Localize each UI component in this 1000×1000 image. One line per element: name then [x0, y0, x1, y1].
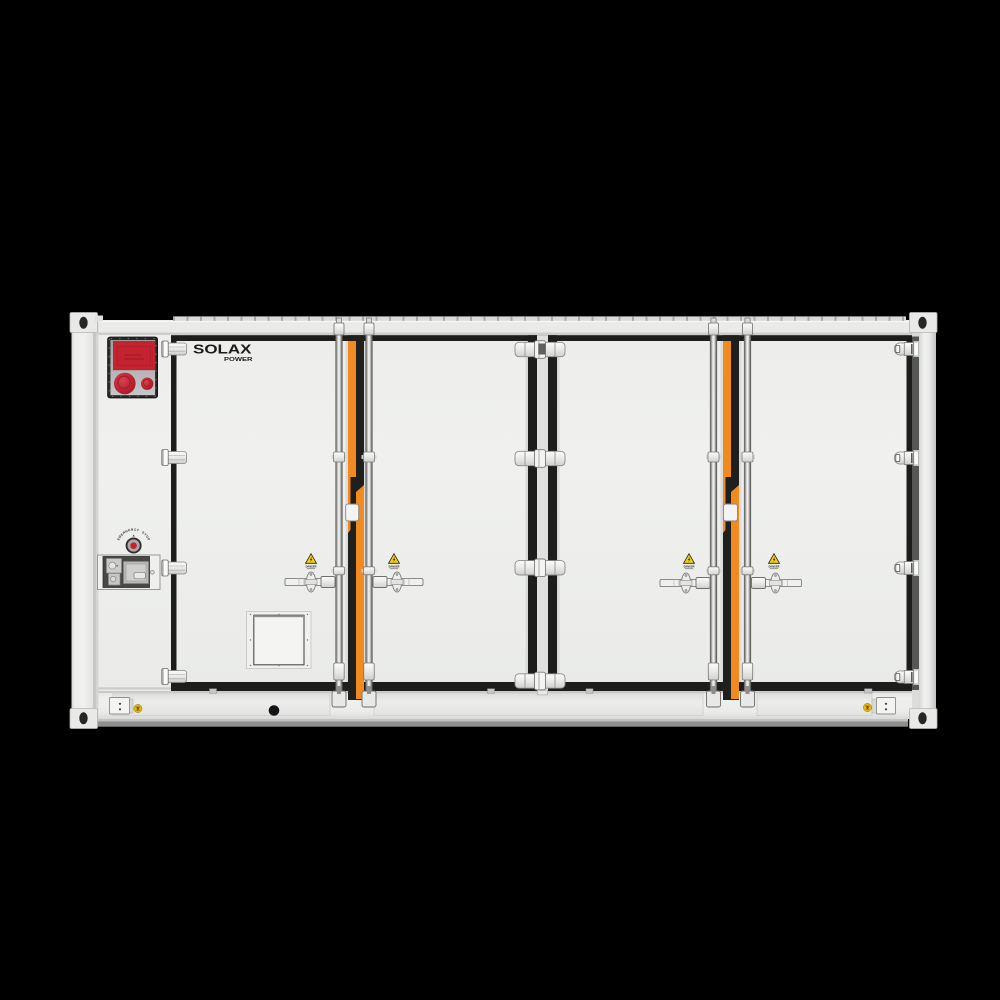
svg-text:SOLAX: SOLAX: [193, 342, 252, 357]
svg-text:POWER: POWER: [224, 357, 253, 363]
